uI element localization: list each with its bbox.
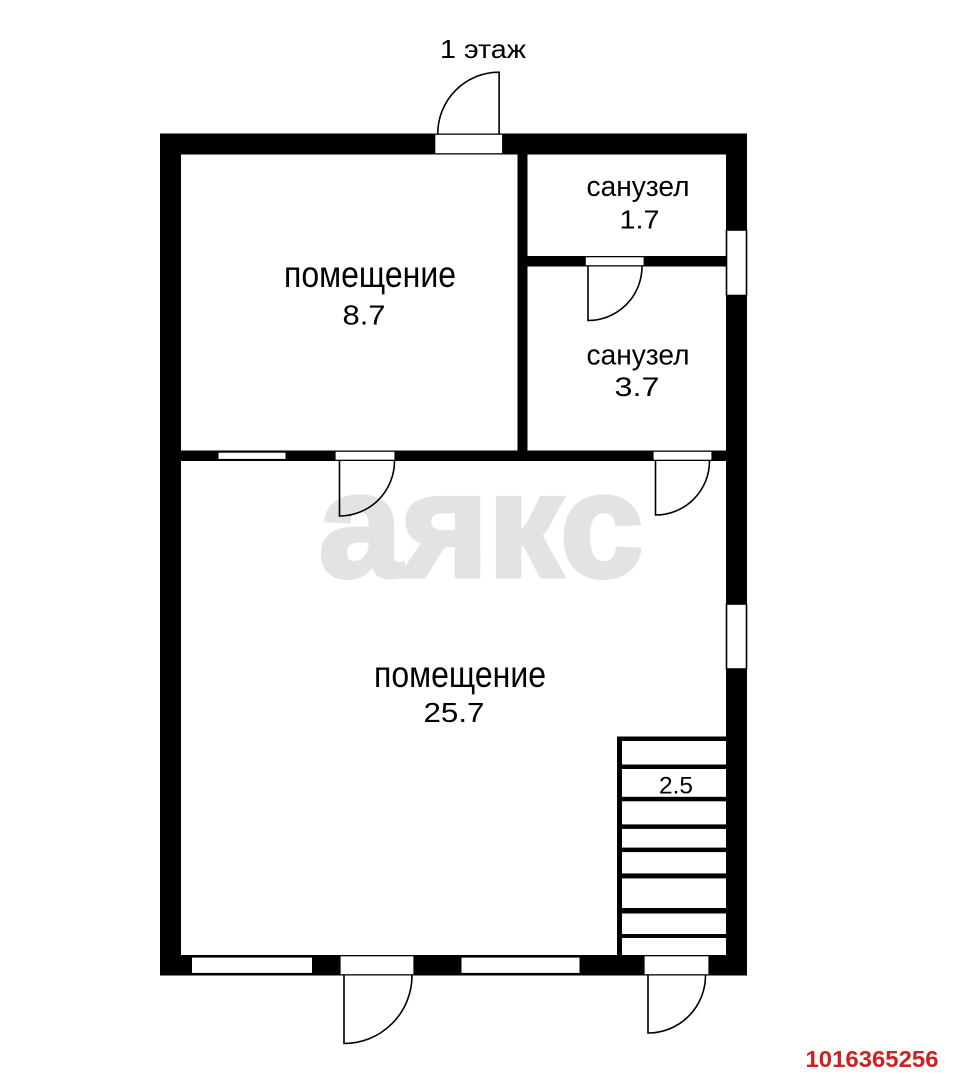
- svg-text:1 этаж: 1 этаж: [440, 34, 527, 64]
- svg-text:1016365256: 1016365256: [806, 1046, 939, 1072]
- svg-text:1.7: 1.7: [620, 204, 660, 234]
- svg-text:помещение: помещение: [374, 654, 546, 695]
- svg-text:аякс: аякс: [319, 444, 643, 608]
- svg-text:помещение: помещение: [284, 254, 456, 295]
- svg-text:8.7: 8.7: [343, 300, 386, 331]
- svg-text:25.7: 25.7: [424, 697, 485, 728]
- svg-text:2.5: 2.5: [659, 773, 693, 800]
- svg-text:санузел: санузел: [587, 340, 690, 372]
- svg-text:санузел: санузел: [587, 171, 690, 203]
- svg-text:3.7: 3.7: [615, 372, 660, 402]
